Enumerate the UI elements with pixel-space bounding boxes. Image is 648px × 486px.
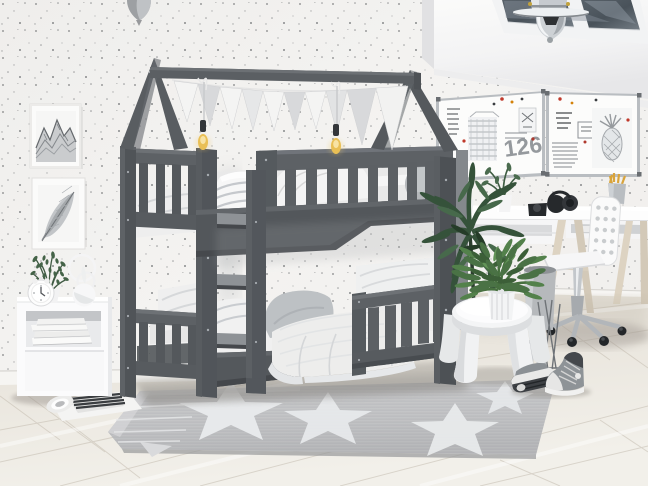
svg-text:126: 126	[502, 131, 544, 162]
